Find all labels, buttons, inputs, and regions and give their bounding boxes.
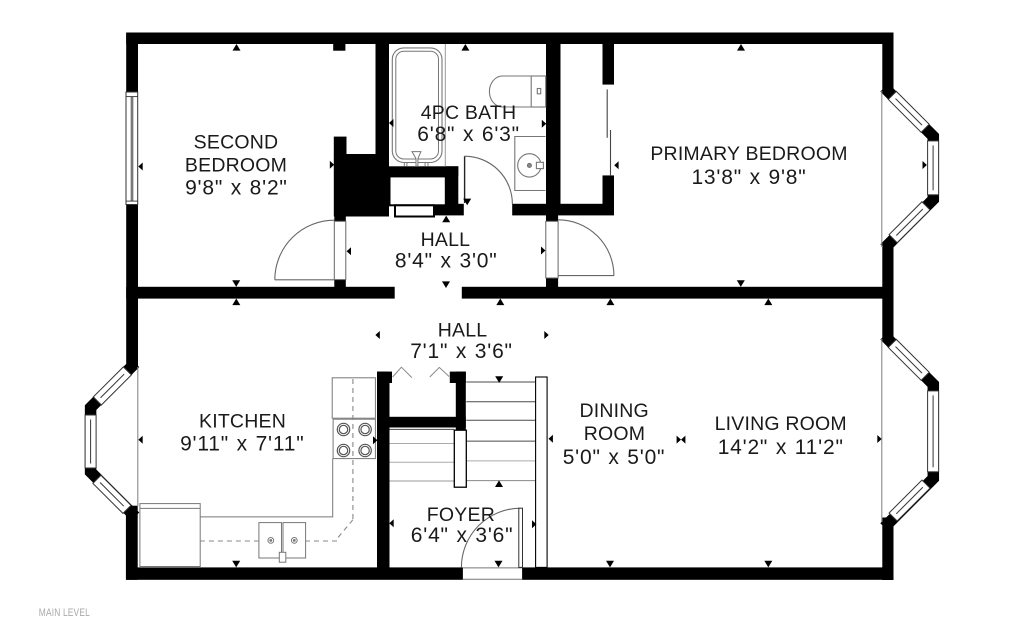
svg-text:5'0" x 5'0": 5'0" x 5'0" <box>563 446 666 469</box>
svg-text:ROOM: ROOM <box>584 423 645 445</box>
svg-text:9'11" x 7'11": 9'11" x 7'11" <box>180 433 304 456</box>
svg-text:HALL: HALL <box>421 229 471 251</box>
svg-text:9'8" x 8'2": 9'8" x 8'2" <box>185 177 288 200</box>
svg-text:13'8" x 9'8": 13'8" x 9'8" <box>691 166 806 189</box>
svg-text:4PC BATH: 4PC BATH <box>421 102 517 124</box>
svg-text:MAIN LEVEL: MAIN LEVEL <box>39 607 91 619</box>
svg-text:PRIMARY BEDROOM: PRIMARY BEDROOM <box>650 143 847 165</box>
svg-text:DINING: DINING <box>579 400 648 422</box>
svg-text:HALL: HALL <box>438 320 488 342</box>
svg-text:7'1" x 3'6": 7'1" x 3'6" <box>410 340 513 363</box>
svg-text:KITCHEN: KITCHEN <box>199 410 286 432</box>
svg-text:LIVING ROOM: LIVING ROOM <box>715 413 847 435</box>
svg-text:FOYER: FOYER <box>427 504 495 526</box>
svg-text:6'4" x 3'6": 6'4" x 3'6" <box>411 524 514 547</box>
svg-text:8'4" x 3'0": 8'4" x 3'0" <box>395 249 498 272</box>
svg-text:BEDROOM: BEDROOM <box>185 155 287 177</box>
svg-text:14'2" x 11'2": 14'2" x 11'2" <box>718 436 844 459</box>
svg-text:SECOND: SECOND <box>194 132 279 154</box>
svg-text:6'8" x 6'3": 6'8" x 6'3" <box>417 123 520 146</box>
